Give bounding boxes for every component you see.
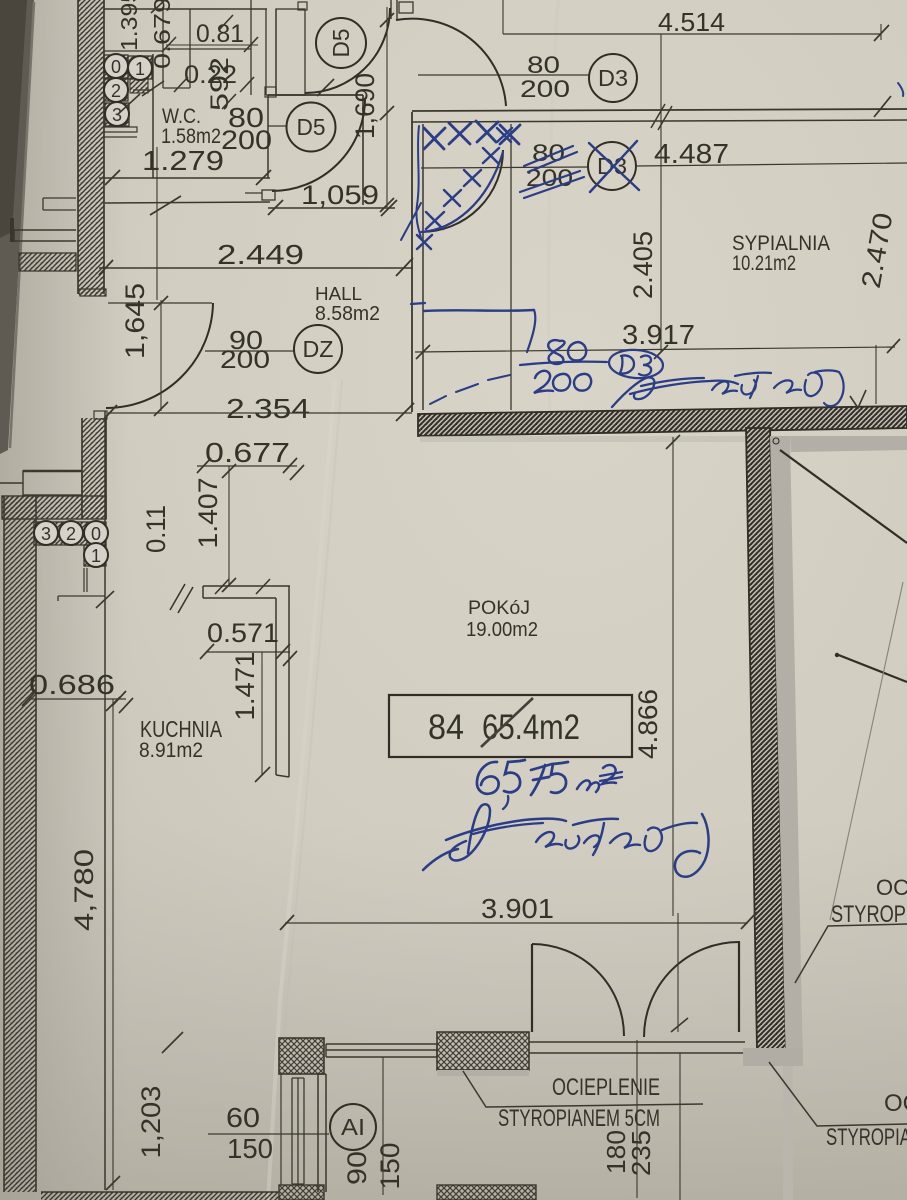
svg-text:2.405: 2.405 — [628, 231, 658, 299]
svg-text:2.354: 2.354 — [226, 393, 310, 424]
svg-text:D5: D5 — [297, 114, 326, 140]
svg-text:0.81: 0.81 — [196, 20, 244, 48]
svg-text:OCI: OCI — [884, 1090, 907, 1117]
svg-text:STYROPIA: STYROPIA — [826, 1124, 907, 1151]
svg-text:OCIEPLENIE: OCIEPLENIE — [552, 1074, 660, 1101]
svg-text:STYROPIANEM 5CM: STYROPIANEM 5CM — [498, 1105, 660, 1132]
svg-text:3.901: 3.901 — [481, 893, 554, 924]
svg-text:19.00m2: 19.00m2 — [466, 619, 538, 641]
svg-text:D5: D5 — [328, 29, 354, 58]
svg-text:90: 90 — [342, 1151, 372, 1185]
svg-text:8.58m2: 8.58m2 — [315, 303, 380, 325]
svg-text:0.686: 0.686 — [29, 669, 115, 700]
svg-text:OC: OC — [876, 875, 907, 900]
svg-text:592: 592 — [206, 57, 234, 111]
svg-text:0.677: 0.677 — [205, 437, 290, 468]
svg-text:1,645: 1,645 — [120, 283, 150, 359]
svg-text:3: 3 — [41, 524, 51, 544]
svg-text:0.11: 0.11 — [141, 505, 171, 553]
svg-text:4.514: 4.514 — [658, 7, 725, 37]
svg-text:HALL: HALL — [315, 284, 362, 304]
svg-text:200: 200 — [520, 76, 570, 103]
svg-text:DZ: DZ — [303, 336, 334, 362]
svg-text:AI: AI — [341, 1114, 365, 1140]
svg-text:0: 0 — [111, 57, 121, 77]
svg-text:200: 200 — [221, 125, 272, 155]
svg-text:1.471: 1.471 — [230, 652, 260, 721]
svg-text:1,690: 1,690 — [350, 73, 380, 139]
svg-text:2: 2 — [111, 81, 121, 101]
svg-text:1,203: 1,203 — [136, 1086, 166, 1159]
svg-text:D3: D3 — [598, 65, 628, 91]
svg-text:65.4m2: 65.4m2 — [482, 708, 580, 747]
svg-text:1.395: 1.395 — [116, 0, 142, 51]
svg-text:2: 2 — [66, 524, 76, 544]
svg-text:200: 200 — [220, 346, 270, 374]
svg-text:1.58m2: 1.58m2 — [161, 125, 221, 148]
svg-text:150: 150 — [375, 1143, 405, 1190]
svg-text:235: 235 — [626, 1130, 656, 1176]
svg-text:4.866: 4.866 — [633, 689, 663, 759]
svg-text:1.279: 1.279 — [142, 145, 224, 176]
svg-text:4.487: 4.487 — [654, 138, 729, 169]
svg-text:8.91m2: 8.91m2 — [139, 739, 203, 762]
svg-text:1: 1 — [135, 59, 145, 79]
svg-text:POKóJ: POKóJ — [468, 598, 530, 619]
svg-text:84: 84 — [428, 708, 464, 747]
svg-text:150: 150 — [227, 1133, 273, 1164]
svg-text:1,059: 1,059 — [301, 180, 379, 210]
svg-text:3.917: 3.917 — [622, 319, 695, 350]
svg-text:2.449: 2.449 — [217, 239, 304, 270]
svg-text:1: 1 — [91, 546, 101, 566]
svg-text:4,780: 4,780 — [69, 849, 99, 931]
svg-text:0.571: 0.571 — [207, 618, 279, 648]
svg-text:1.407: 1.407 — [193, 478, 223, 549]
svg-text:60: 60 — [226, 1102, 260, 1133]
svg-text:10.21m2: 10.21m2 — [732, 252, 796, 275]
svg-text:0: 0 — [91, 524, 101, 544]
